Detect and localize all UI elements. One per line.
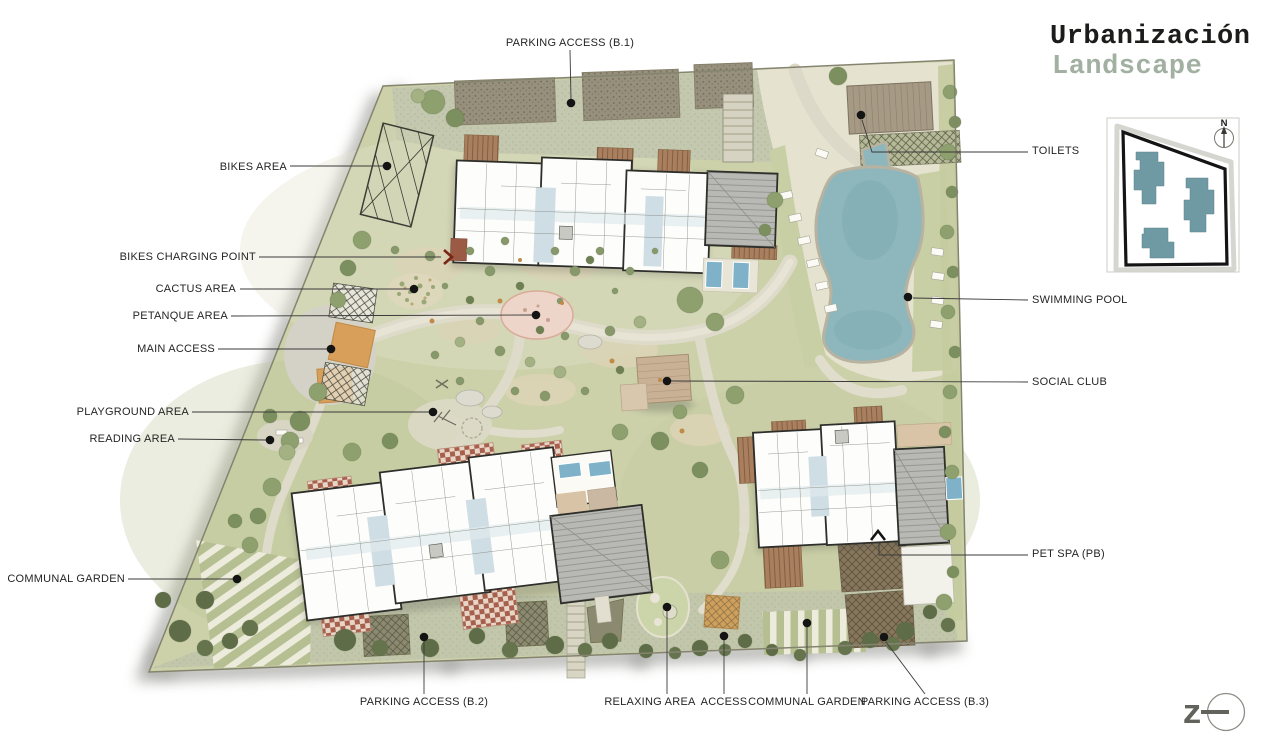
logo-letter: z [1182,696,1202,734]
label-main-access: MAIN ACCESS [137,343,215,355]
stairs-walkway [723,94,753,162]
stepping-walkway [567,598,585,678]
label-petanque-area: PETANQUE AREA [133,310,228,322]
label-access: ACCESS [701,696,748,708]
label-communal-garden-left: COMMUNAL GARDEN [7,573,125,585]
logo-mark: z [1182,694,1245,735]
label-swimming-pool: SWIMMING POOL [1032,294,1128,306]
label-relaxing-area: RELAXING AREA [604,696,695,708]
label-parking-access-b1: PARKING ACCESS (B.1) [506,37,634,49]
compass-n-label: N [1221,118,1228,129]
access-gate-shape [704,595,740,629]
site-plan-drawing: N z [0,0,1280,742]
label-playground-area: PLAYGROUND AREA [77,406,189,418]
label-parking-access-b2: PARKING ACCESS (B.2) [360,696,488,708]
label-toilets: TOILETS [1032,145,1079,157]
label-reading-area: READING AREA [89,433,175,445]
label-bikes-area: BIKES AREA [220,161,287,173]
page-subtitle: Landscape [1052,52,1202,82]
label-communal-garden-bottom: COMMUNAL GARDEN [748,696,866,708]
label-parking-access-b3: PARKING ACCESS (B.3) [861,696,989,708]
label-bikes-charging-point: BIKES CHARGING POINT [120,251,256,263]
inset-map: N [1107,118,1239,272]
label-pet-spa: PET SPA (PB) [1032,548,1105,560]
label-social-club: SOCIAL CLUB [1032,376,1107,388]
label-cactus-area: CACTUS AREA [156,283,236,295]
page-title: Urbanización [1050,22,1250,52]
site-plan-page: N z Urbanización Landscape PARKING ACCES… [0,0,1280,742]
swimming-pool-shape [816,142,923,362]
